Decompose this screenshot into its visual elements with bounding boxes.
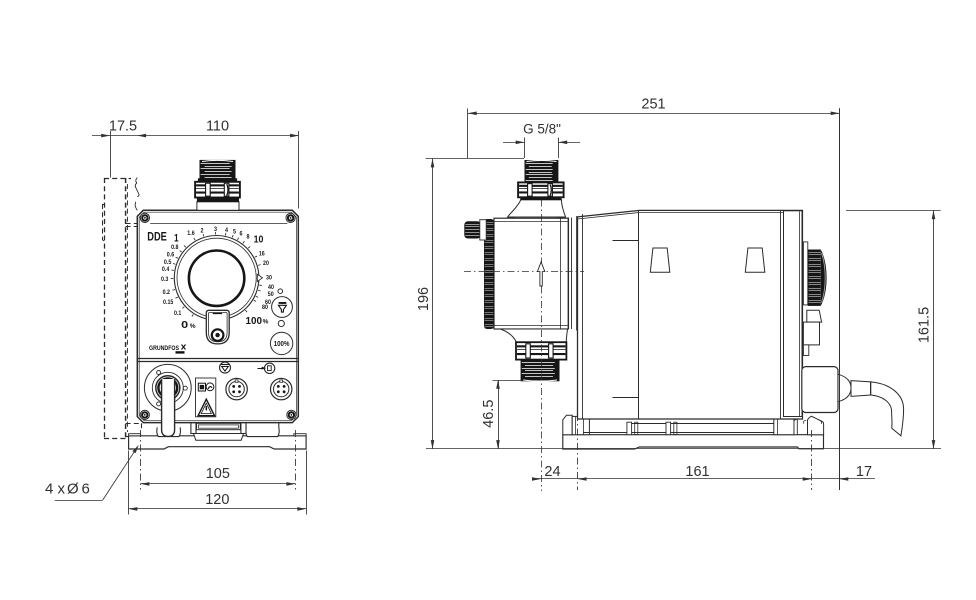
svg-text:3: 3 [214,226,217,233]
svg-text:%: % [190,323,196,330]
svg-text:1.6: 1.6 [187,230,195,237]
svg-text:0.15: 0.15 [163,299,174,306]
svg-text:105: 105 [206,466,230,482]
svg-text:0.2: 0.2 [163,289,171,296]
svg-text:6: 6 [82,480,90,497]
svg-text:100%: 100% [274,339,290,348]
svg-text:24: 24 [544,464,560,480]
svg-text:1: 1 [174,232,179,244]
svg-text:17: 17 [856,464,872,480]
svg-text:0.5: 0.5 [164,259,172,266]
svg-text:16: 16 [259,251,265,258]
svg-text:6: 6 [240,231,243,238]
svg-text:30: 30 [266,275,272,282]
svg-text:17.5: 17.5 [109,119,137,135]
svg-text:DDE: DDE [147,232,167,244]
svg-text:46.5: 46.5 [481,400,497,428]
svg-text:100: 100 [246,316,263,327]
svg-text:0.6: 0.6 [167,252,175,259]
svg-text:40: 40 [268,284,274,291]
svg-text:50: 50 [268,291,274,298]
svg-text:8: 8 [247,234,250,241]
svg-text:2: 2 [201,228,204,235]
svg-text:4 x: 4 x [45,480,66,497]
svg-text:0.3: 0.3 [161,276,169,283]
svg-text:5: 5 [233,229,236,236]
svg-text:4: 4 [225,227,228,234]
svg-text:251: 251 [641,97,665,113]
svg-text:80: 80 [262,304,268,311]
svg-text:196: 196 [416,287,432,311]
svg-text:120: 120 [205,492,229,508]
svg-text:GRUNDFOS: GRUNDFOS [149,345,180,352]
svg-text:20: 20 [263,260,269,267]
svg-text:0.4: 0.4 [162,266,170,273]
svg-text:%: % [263,319,269,326]
svg-text:110: 110 [206,119,229,135]
svg-text:10: 10 [254,235,264,246]
svg-text:0: 0 [181,320,188,331]
svg-text:161: 161 [685,464,709,480]
svg-text:Ø: Ø [67,480,79,497]
svg-text:0.8: 0.8 [171,244,179,251]
svg-text:G 5/8": G 5/8" [523,122,561,137]
svg-text:161.5: 161.5 [917,307,933,343]
svg-text:0.1: 0.1 [174,310,182,317]
